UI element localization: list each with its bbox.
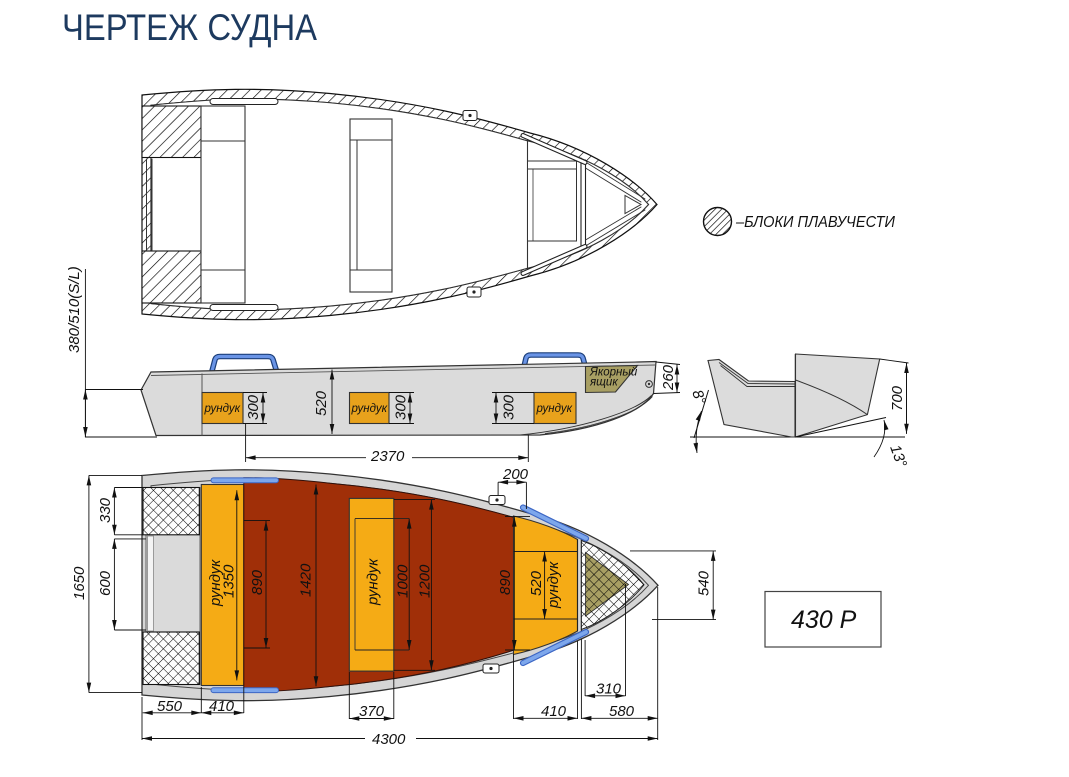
svg-text:300: 300 [245, 394, 262, 420]
svg-text:1350: 1350 [221, 564, 238, 598]
svg-text:410: 410 [541, 703, 567, 720]
svg-text:260: 260 [660, 364, 677, 391]
svg-text:300: 300 [501, 394, 518, 420]
svg-text:580: 580 [609, 703, 635, 720]
svg-text:рундук: рундук [536, 403, 573, 415]
svg-text:370: 370 [359, 703, 385, 720]
svg-text:2370: 2370 [370, 448, 405, 465]
svg-text:300: 300 [393, 394, 410, 420]
svg-text:520: 520 [528, 570, 545, 596]
svg-text:540: 540 [696, 570, 713, 596]
svg-text:рундук: рундук [365, 558, 382, 606]
svg-text:200: 200 [502, 466, 529, 483]
svg-text:ЧЕРТЕЖ СУДНА: ЧЕРТЕЖ СУДНА [62, 7, 317, 48]
svg-text:рундук: рундук [204, 403, 241, 415]
svg-text:310: 310 [596, 681, 622, 698]
svg-text:1650: 1650 [71, 566, 88, 600]
svg-text:550: 550 [157, 698, 183, 715]
svg-text:рундук: рундук [545, 561, 562, 609]
svg-text:380/510(S/L): 380/510(S/L) [66, 266, 83, 353]
svg-text:1000: 1000 [395, 564, 412, 598]
svg-text:890: 890 [249, 569, 266, 595]
svg-text:рундук: рундук [351, 403, 388, 415]
svg-text:600: 600 [97, 570, 114, 596]
svg-text:700: 700 [889, 385, 906, 411]
svg-text:430 Р: 430 Р [791, 606, 857, 634]
svg-text:1420: 1420 [298, 563, 315, 597]
svg-text:4300: 4300 [372, 731, 406, 748]
svg-text:1200: 1200 [417, 564, 434, 598]
svg-text:ящик: ящик [589, 377, 618, 389]
svg-text:520: 520 [313, 390, 330, 416]
svg-text:–БЛОКИ ПЛАВУЧЕСТИ: –БЛОКИ ПЛАВУЧЕСТИ [735, 214, 896, 231]
svg-text:410: 410 [209, 698, 235, 715]
svg-text:330: 330 [97, 497, 114, 523]
svg-text:890: 890 [497, 569, 514, 595]
